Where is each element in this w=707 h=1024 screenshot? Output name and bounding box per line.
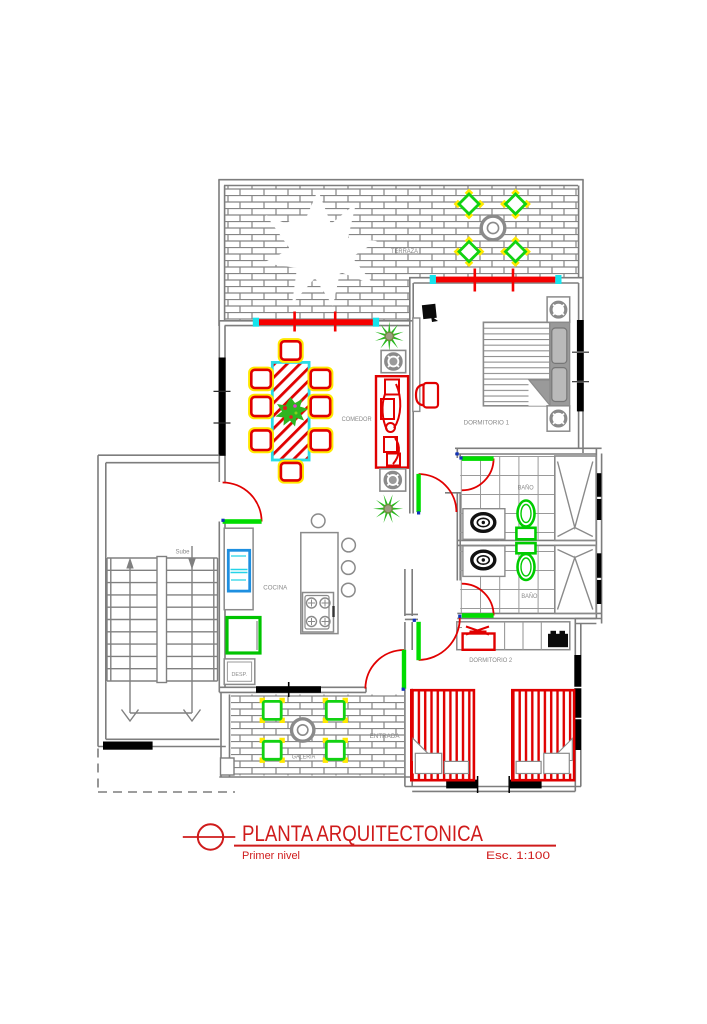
svg-text:BAÑO: BAÑO [518,485,534,492]
svg-text:DORMITORIO 1: DORMITORIO 1 [464,420,510,427]
svg-text:Primer nivel: Primer nivel [242,850,300,862]
svg-text:BAÑO: BAÑO [521,593,537,600]
svg-text:ENTRADA: ENTRADA [370,733,400,740]
svg-text:COMEDOR: COMEDOR [342,416,372,423]
svg-text:Sube: Sube [176,549,191,556]
svg-text:GALERIA: GALERIA [292,754,316,761]
svg-text:DORMITORIO 2: DORMITORIO 2 [469,657,512,664]
svg-text:PLANTA ARQUITECTONICA: PLANTA ARQUITECTONICA [242,821,483,846]
svg-text:COCINA: COCINA [263,585,287,592]
svg-text:Esc. 1:100: Esc. 1:100 [486,850,550,862]
svg-text:DESP.: DESP. [232,672,248,678]
svg-text:TERRAZA: TERRAZA [391,248,418,255]
